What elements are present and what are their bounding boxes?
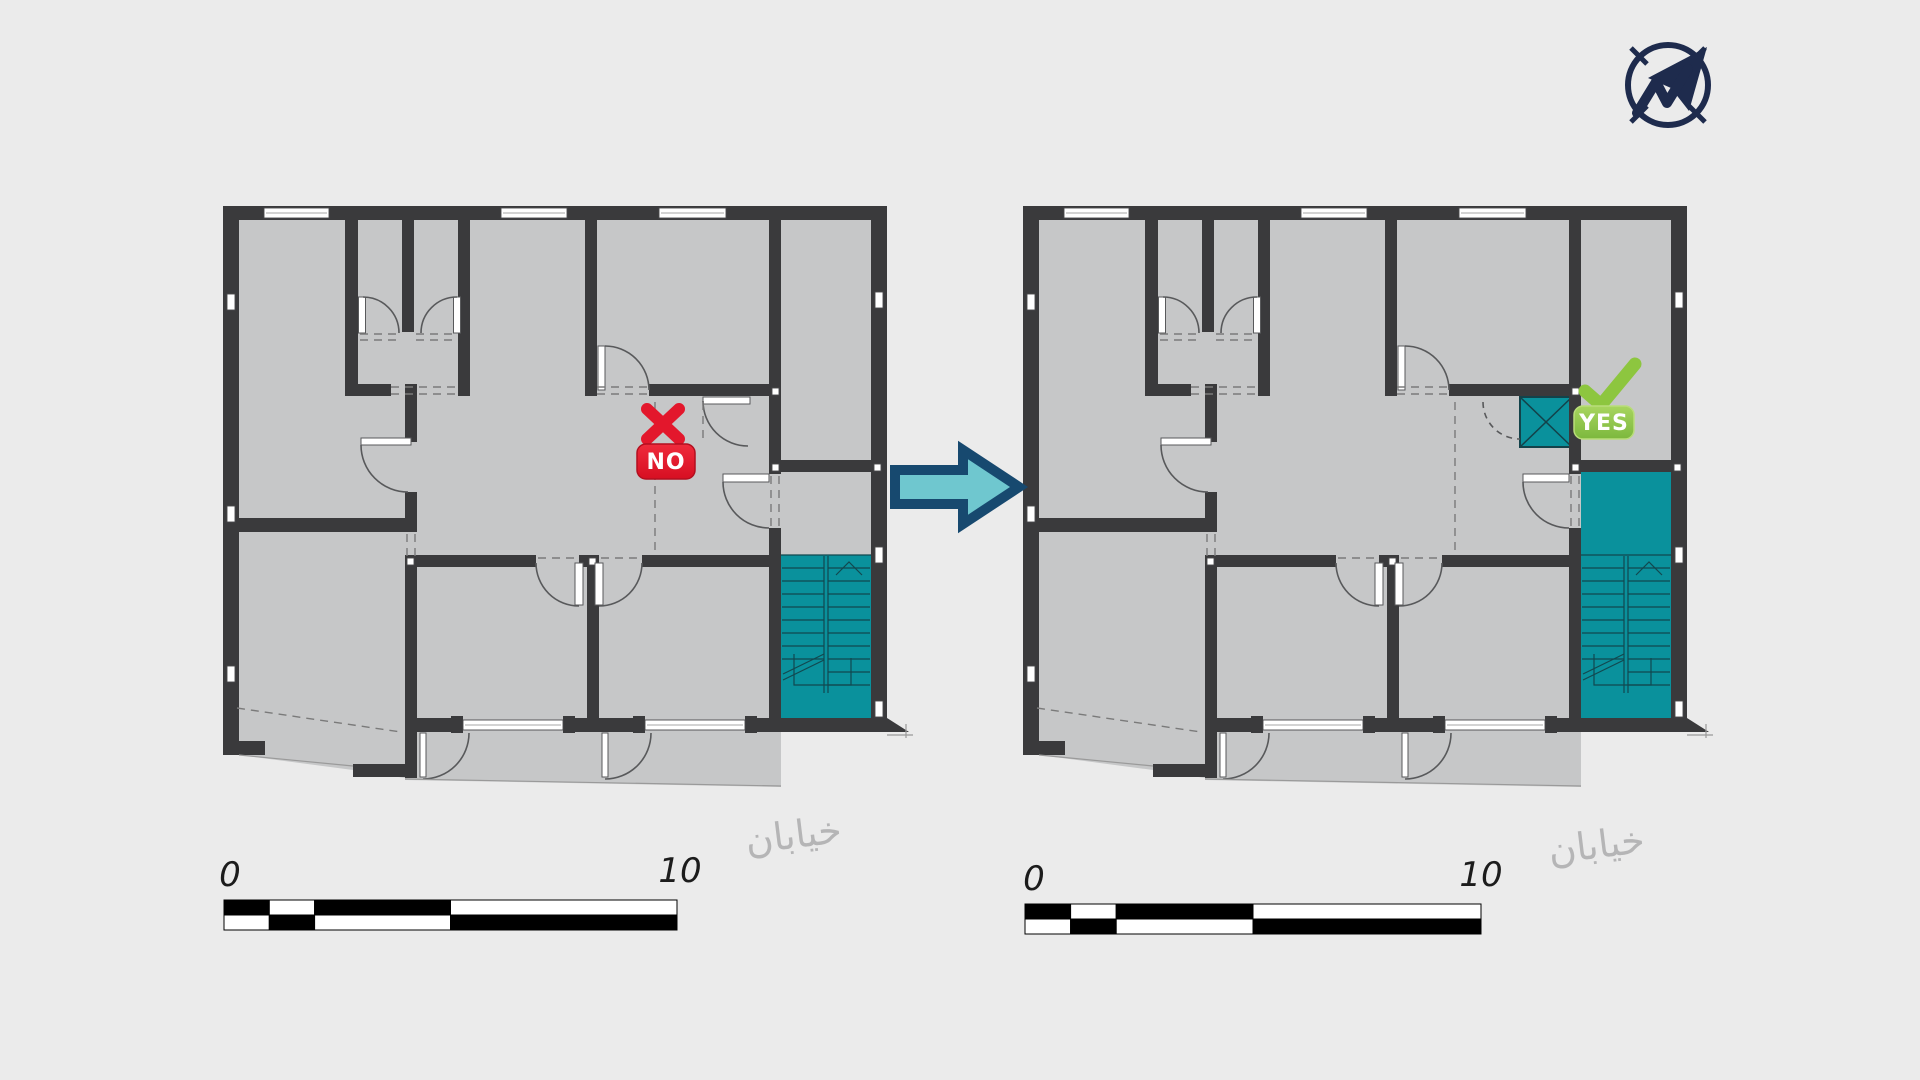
scale-end-right: 10 (1459, 855, 1502, 895)
street-label-right: خیابان (1546, 817, 1647, 872)
no-badge-label: NO (646, 450, 685, 475)
elevator-lobby (1581, 472, 1671, 555)
scale-bar-right (1025, 904, 1481, 934)
elevator-shaft-icon (1520, 397, 1572, 447)
transform-arrow-icon (895, 450, 1019, 524)
stair-core-icon (781, 555, 871, 718)
floor-plan-before (223, 206, 913, 787)
floor-plan-after (1023, 206, 1713, 787)
street-label-left: خیابان (743, 807, 844, 862)
scale-end-left: 10 (658, 851, 701, 891)
yes-badge-label: YES (1578, 411, 1629, 436)
stair-core-icon (1581, 472, 1671, 718)
scale-start-right: 0 (1023, 859, 1045, 899)
compass-icon (1628, 45, 1708, 125)
scale-start-left: 0 (219, 855, 241, 895)
floor-plan-comparison-figure: NO YES 0 10 0 10 خیابان خیابان (0, 0, 1920, 1080)
scale-bar-left (224, 900, 677, 930)
